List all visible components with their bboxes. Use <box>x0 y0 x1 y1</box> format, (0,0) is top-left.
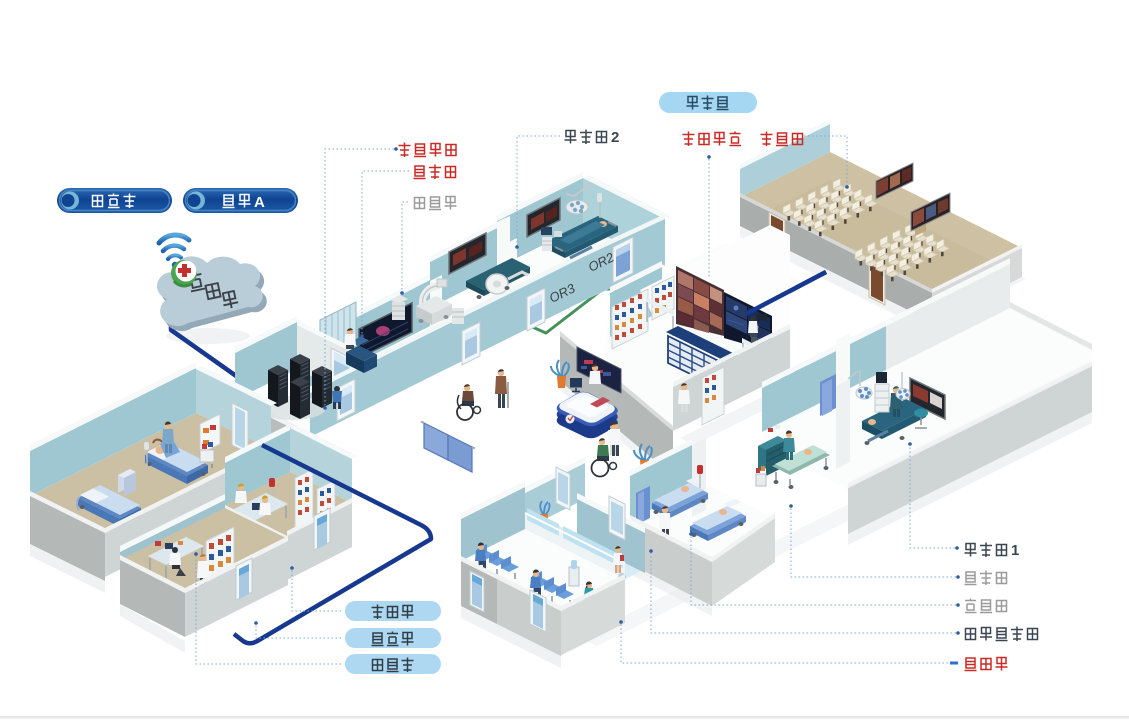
svg-text:A: A <box>254 194 265 211</box>
svg-text:1: 1 <box>1011 542 1019 559</box>
svg-text:2: 2 <box>611 129 619 146</box>
